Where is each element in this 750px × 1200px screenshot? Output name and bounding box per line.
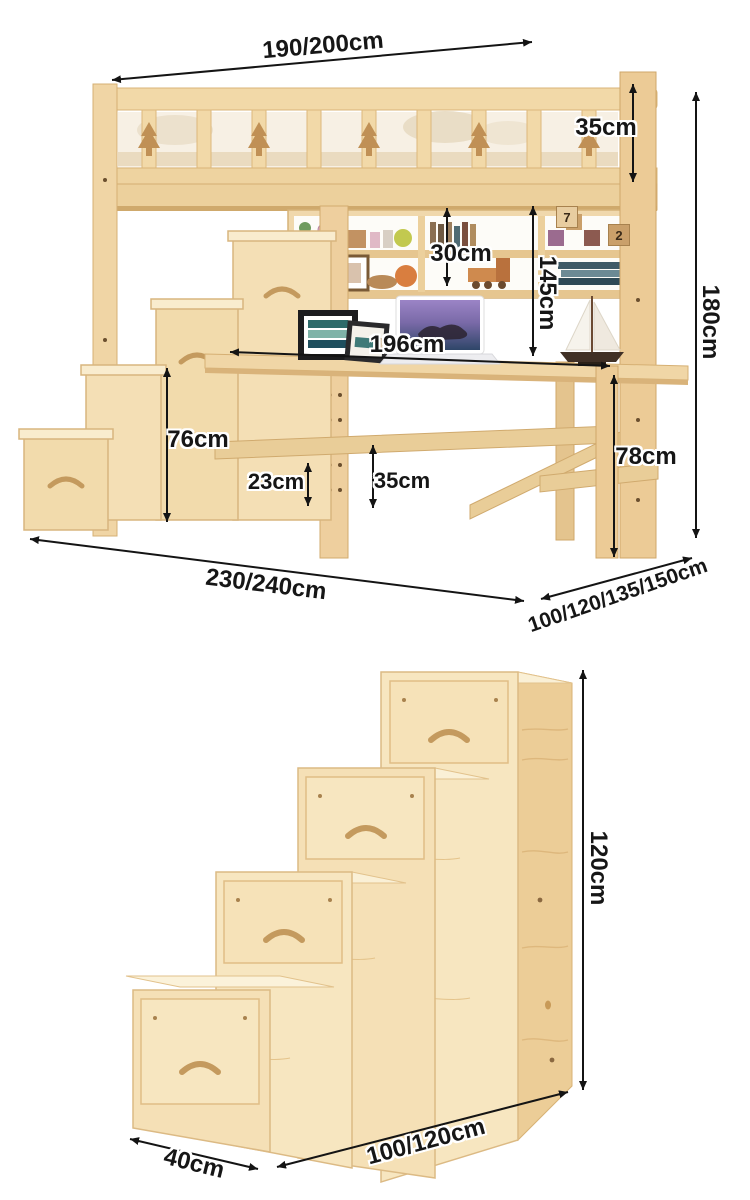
dim-label-guardrail-height: 35cm — [566, 115, 646, 141]
dim-label-desk-length: 196cm — [347, 332, 467, 358]
sailboat-model — [560, 296, 624, 366]
dim-label-hutch-shelf-height: 30cm — [421, 241, 501, 267]
product-dimension-page: 190/200cm 35cm 30cm 145cm 180cm 196cm 76… — [0, 0, 750, 1200]
toy-block-number: 7 — [556, 206, 578, 228]
dim-label-desk-height: 78cm — [606, 444, 686, 470]
loft-bed-illustration — [19, 72, 688, 558]
dim-label-stairs-overall-height: 120cm — [585, 828, 611, 908]
dim-label-stair-side-height: 76cm — [158, 427, 238, 453]
toy-block-number: 2 — [608, 224, 630, 246]
dim-label-stretcher-height: 35cm — [362, 468, 442, 494]
dim-label-overall-height: 180cm — [697, 282, 723, 362]
stairs-side-panel — [518, 672, 572, 1140]
dim-label-lower-rail-gap: 23cm — [236, 469, 316, 495]
dim-label-bed-underside-height: 145cm — [534, 253, 560, 333]
storage-stairs-illustration — [126, 672, 572, 1182]
